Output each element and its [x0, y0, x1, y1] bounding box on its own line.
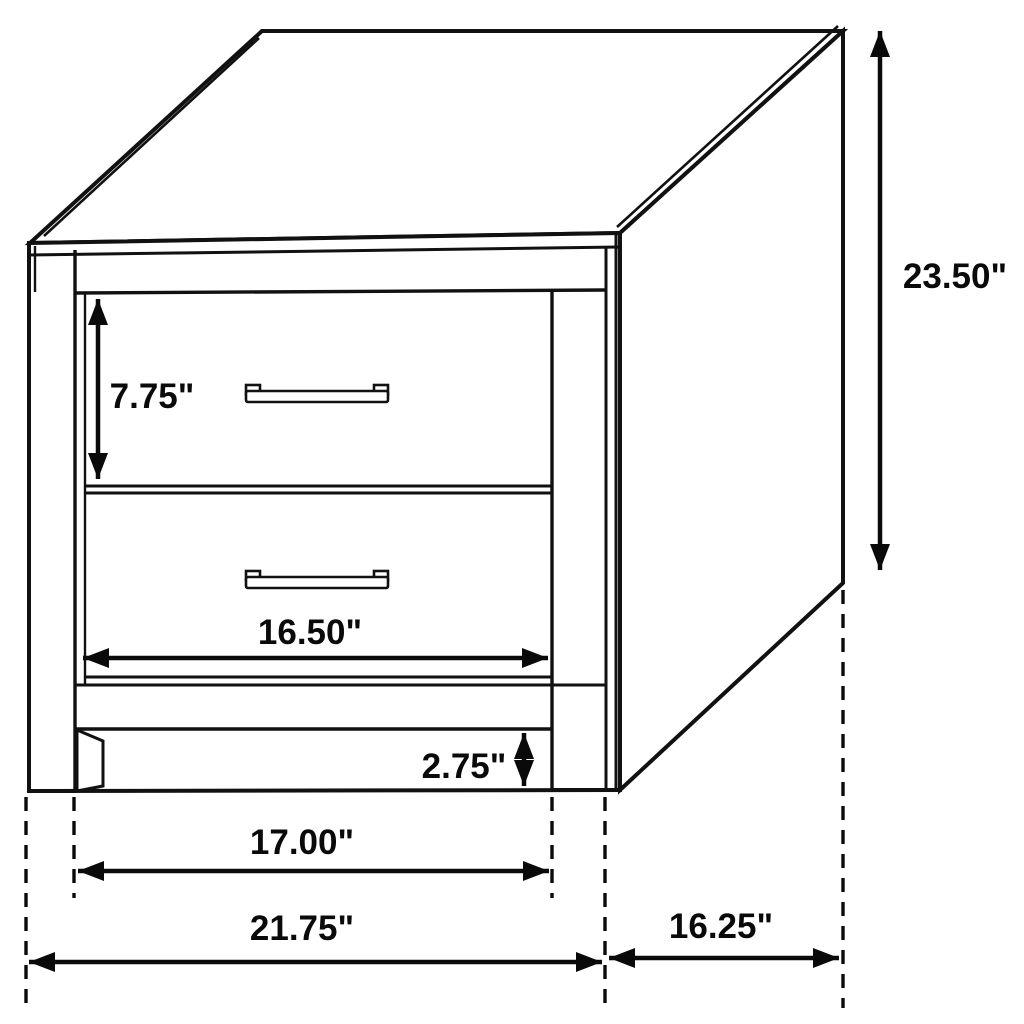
handle-bar: [246, 577, 388, 588]
drawer-height-label: 7.75": [110, 377, 195, 416]
dimension-side-depth: 16.25": [609, 907, 839, 958]
dimension-overall-height: 23.50": [880, 31, 1007, 570]
drawer-width-label: 16.50": [258, 613, 362, 652]
overall-height-label: 23.50": [903, 257, 1007, 296]
back-leg: [77, 730, 103, 791]
leg-height-label: 2.75": [422, 747, 507, 786]
front-face-panel: [29, 233, 620, 791]
front-face: [29, 233, 620, 791]
between-legs-label: 17.00": [250, 823, 354, 862]
side-depth-label: 16.25": [669, 907, 773, 946]
dimension-overall-width: 21.75": [29, 909, 602, 962]
diagram-canvas: 23.50" 7.75" 16.50" 2.75" 17.00" 21.75" …: [0, 0, 1024, 1024]
dimension-between-legs-width: 17.00": [78, 823, 549, 871]
handle-bar: [246, 391, 388, 402]
nightstand-dimension-diagram: 23.50" 7.75" 16.50" 2.75" 17.00" 21.75" …: [0, 0, 1024, 1024]
overall-width-label: 21.75": [250, 909, 354, 948]
